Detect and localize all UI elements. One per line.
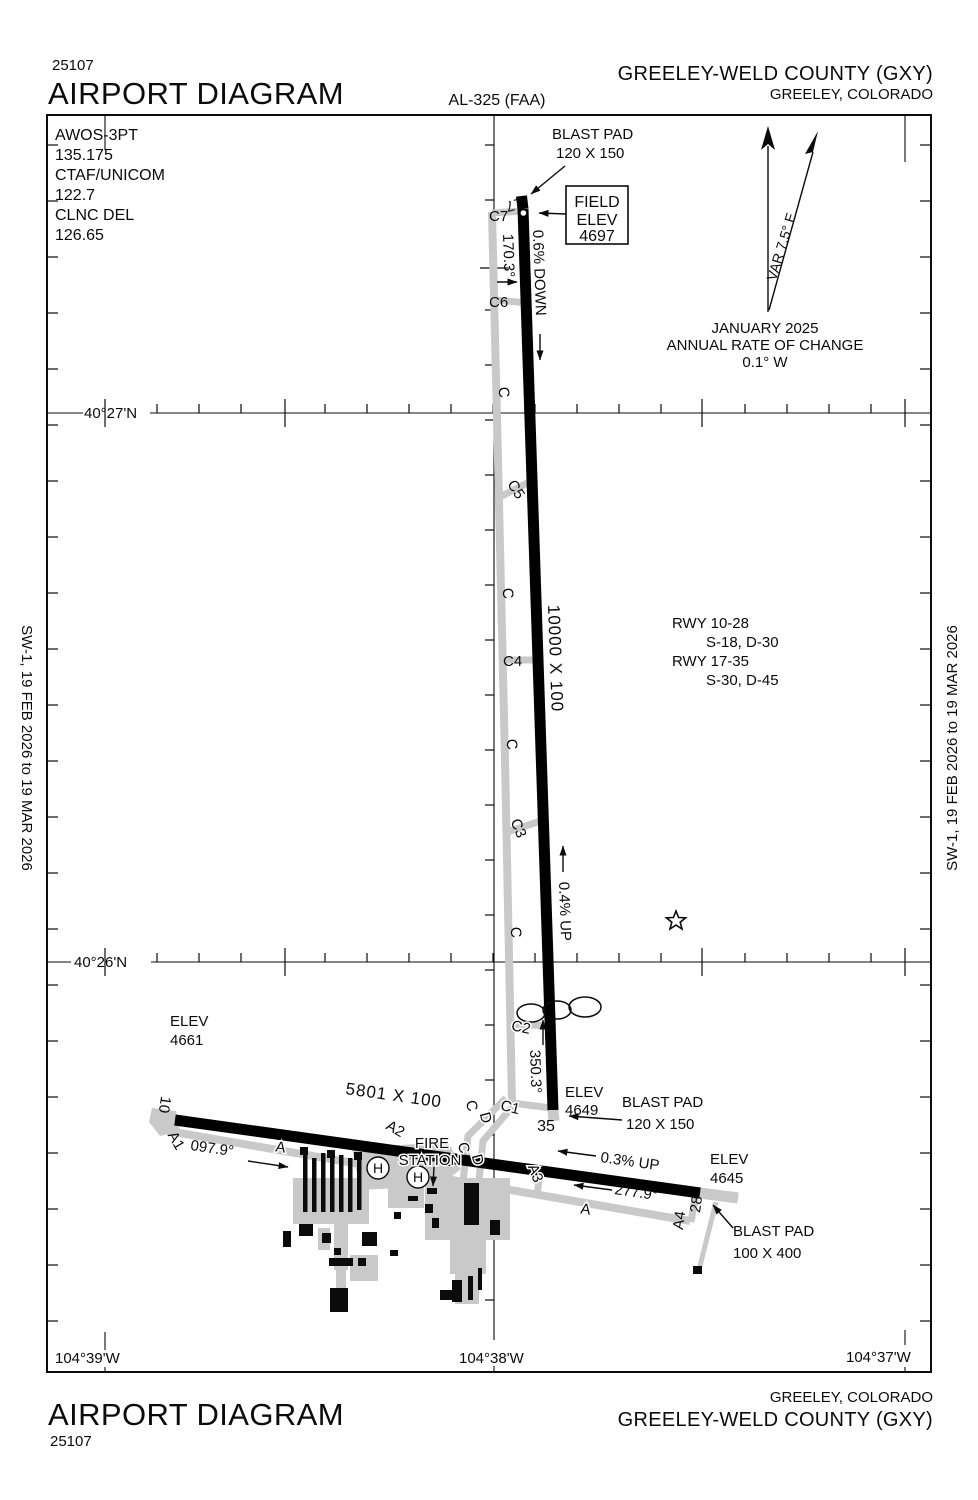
arrow-blast-pad-17 <box>531 166 565 194</box>
blast-pad-35-label2: 120 X 150 <box>626 1116 694 1133</box>
rwy-10-number: 10 <box>155 1095 174 1114</box>
comm-clnc-freq: 126.65 <box>55 227 104 244</box>
rwy-28-slope: 0.3% UP <box>599 1149 660 1174</box>
loop-symbol-3 <box>569 997 601 1017</box>
airport-beacon-star-icon <box>666 911 685 929</box>
rwy-17-slope: 0.6% DOWN <box>529 230 549 316</box>
apron-patch-4 <box>388 1186 424 1208</box>
arrow-blast-pad-28 <box>713 1205 733 1228</box>
footer: AIRPORT DIAGRAM 25107 GREELEY, COLORADO … <box>48 1389 933 1450</box>
blast-pad-17-label2: 120 X 150 <box>556 145 624 162</box>
taxiway-layer <box>149 211 738 1274</box>
rwy-data-1: RWY 10-28 <box>672 615 749 632</box>
rwy-10-28-size: 5801 X 100 <box>344 1079 443 1111</box>
arrow-slope-up-28 <box>558 1151 596 1156</box>
building-road-end <box>693 1266 702 1274</box>
taxiway-c-label-5: C <box>462 1098 481 1113</box>
taxiway-c6-label: C6 <box>489 294 508 311</box>
arrow-heading-28 <box>574 1185 612 1190</box>
rate-of-change-value: 0.1° W <box>742 354 788 371</box>
magnetic-north-arrowhead <box>805 131 818 154</box>
rwy-35-heading: 350.3° <box>526 1050 545 1094</box>
taxiway-c-label-4: C <box>506 926 524 939</box>
taxiway-a4-label: A4 <box>670 1210 689 1231</box>
lon-label-east: 104°37'W <box>846 1349 912 1366</box>
rwy-28-elev-value: 4645 <box>710 1170 743 1187</box>
rwy-10-elev-value: 4661 <box>170 1032 203 1049</box>
taxiway-d-label-1: D <box>476 1110 495 1125</box>
rwy-35-elev-value: 4649 <box>565 1102 598 1119</box>
taxiway-a-label-2: A <box>579 1200 591 1218</box>
chart-number-bottom: 25107 <box>50 1433 92 1450</box>
variation-label: VAR 7.5° E <box>763 211 799 283</box>
airport-name-bottom: GREELEY-WELD COUNTY (GXY) <box>618 1409 933 1431</box>
rwy-35-number: 35 <box>537 1118 555 1135</box>
page-title-top: AIRPORT DIAGRAM <box>48 76 344 111</box>
airport-diagram-page: 25107 AIRPORT DIAGRAM AL-325 (FAA) GREEL… <box>0 0 978 1500</box>
comm-clnc-label: CLNC DEL <box>55 207 134 224</box>
comm-ctaf-label: CTAF/UNICOM <box>55 167 165 184</box>
taxiway-c-label-3: C <box>502 738 520 751</box>
airport-city-bottom: GREELEY, COLORADO <box>770 1389 933 1406</box>
lat-label-north: 40°27'N <box>84 405 137 422</box>
airport-city-top: GREELEY, COLORADO <box>770 86 933 103</box>
effective-dates-right: SW-1, 19 FEB 2026 to 19 MAR 2026 <box>944 625 961 871</box>
taxiway-c4-label: C4 <box>503 653 522 670</box>
taxiway-c-label-1: C <box>494 386 512 399</box>
effective-dates-left: SW-1, 19 FEB 2026 to 19 MAR 2026 <box>18 625 35 871</box>
rwy-data-2s: S-30, D-45 <box>706 672 779 689</box>
runway-layer <box>175 196 700 1193</box>
rwy-10-elev-label: ELEV <box>170 1013 208 1030</box>
lon-label-center: 104°38'W <box>459 1350 525 1367</box>
field-elev-line1: FIELD <box>574 194 619 211</box>
comm-ctaf-freq: 122.7 <box>55 187 95 204</box>
arrow-field-elev <box>539 213 566 214</box>
blast-pad-28-label1: BLAST PAD <box>733 1223 814 1240</box>
blast-pad-17-label1: BLAST PAD <box>552 126 633 143</box>
blast-pad-28-label2: 100 X 400 <box>733 1245 801 1262</box>
symbols: H H <box>367 126 818 1188</box>
helipad-h-2: H <box>413 1169 423 1185</box>
rate-of-change-label: ANNUAL RATE OF CHANGE <box>667 337 864 354</box>
helipad-h-1: H <box>373 1160 383 1176</box>
rwy-data-1s: S-18, D-30 <box>706 634 779 651</box>
map-labels: AWOS-3PT 135.175 CTAF/UNICOM 122.7 CLNC … <box>55 126 863 1262</box>
airport-name-top: GREELEY-WELD COUNTY (GXY) <box>618 63 933 85</box>
rwy-17-35-size: 10000 X 100 <box>544 604 567 712</box>
rwy-28-number: 28 <box>687 1195 706 1214</box>
taxiway-c-label-2: C <box>498 587 516 600</box>
variation-date: JANUARY 2025 <box>711 320 818 337</box>
comm-awos-label: AWOS-3PT <box>55 127 138 144</box>
lat-label-south: 40°26'N <box>74 954 127 971</box>
rwy-35-elev-label: ELEV <box>565 1084 603 1101</box>
page-title-bottom: AIRPORT DIAGRAM <box>48 1397 344 1432</box>
arrows <box>248 166 733 1228</box>
arrow-heading-10 <box>248 1161 288 1167</box>
rwy-28-elev-label: ELEV <box>710 1151 748 1168</box>
taxiway-c-label-6: C <box>454 1140 473 1155</box>
field-elev-line2: ELEV <box>577 212 618 229</box>
field-elev-value: 4697 <box>579 228 615 245</box>
arrow-fire-station <box>433 1167 434 1186</box>
comm-awos-freq: 135.175 <box>55 147 113 164</box>
airport-diagram-chart: 25107 AIRPORT DIAGRAM AL-325 (FAA) GREEL… <box>0 0 978 1500</box>
blast-pad-35-label1: BLAST PAD <box>622 1094 703 1111</box>
rwy-data-2: RWY 17-35 <box>672 653 749 670</box>
rwy-17-heading: 170.3° <box>499 234 518 278</box>
procedure-id: AL-325 (FAA) <box>449 92 546 109</box>
taxiway-a2-label: A2 <box>383 1117 407 1141</box>
taxiway-c7-label: C7 <box>489 208 508 225</box>
lon-label-west: 104°39'W <box>55 1350 121 1367</box>
fire-station-label2: STATION <box>399 1152 462 1169</box>
chart-number-top: 25107 <box>52 57 94 74</box>
apron-layer <box>283 1142 510 1312</box>
rwy-35-slope: 0.4% UP <box>555 882 574 942</box>
header: 25107 AIRPORT DIAGRAM AL-325 (FAA) GREEL… <box>48 57 933 111</box>
fire-station-label1: FIRE <box>415 1135 449 1152</box>
